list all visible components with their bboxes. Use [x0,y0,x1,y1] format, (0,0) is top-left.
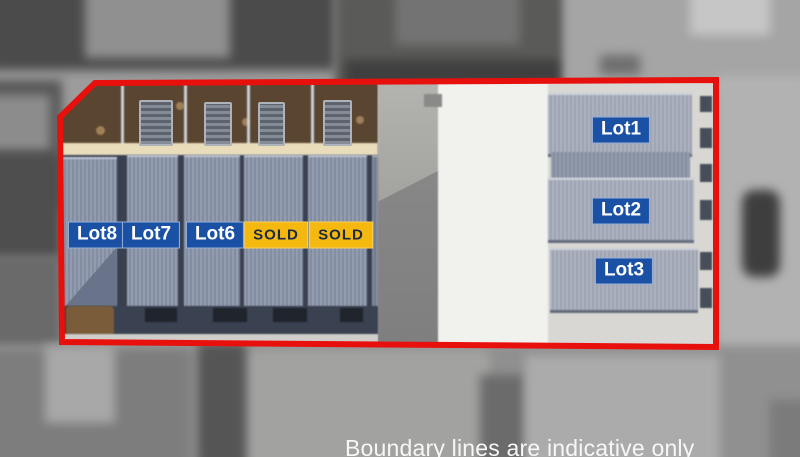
strip-bottom-far-right [770,400,800,457]
neighbour-left-lower [0,255,62,350]
neighbour-patch-top-right [690,0,770,35]
east-fence-2 [700,128,712,148]
neighbour-roof-top-mid-light [395,0,520,45]
parked-car [742,190,780,277]
east-fence-4 [700,200,712,220]
dirt-patch-front [66,306,114,336]
east-fence-6 [700,288,712,308]
boundary-disclaimer-caption: Boundary lines are indicative only [345,435,694,457]
yard-spot-1 [96,126,105,135]
east-fence-5 [700,252,712,270]
path-bottom-left [45,345,115,423]
driveway-object [424,94,442,107]
neighbour-left-light [0,95,50,150]
yard-spot-4 [356,116,364,124]
sold-badge-2: SOLD [309,222,373,249]
ac-unit-2 [204,102,232,146]
east-fence-1 [700,96,712,112]
driveway-bright [438,83,548,345]
lot8-label: Lot8 [68,222,126,249]
lot6-label: Lot6 [186,222,244,249]
carport-opening-1 [145,308,177,322]
ac-unit-1 [139,100,173,146]
lot3-label: Lot3 [595,258,653,285]
shadow-strip-bottom [198,343,246,457]
lot2-label: Lot2 [592,198,650,225]
neighbour-roof-top-left-light [85,0,230,58]
east-fence-3 [700,164,712,182]
lot1-label: Lot1 [592,117,650,144]
connector-roof [551,152,690,178]
sold-badge-1: SOLD [244,222,308,249]
front-path [62,334,390,343]
neighbour-speck-top [600,55,640,75]
ac-unit-4 [323,100,352,146]
aerial-photo: Lot8 Lot7 Lot6 SOLD SOLD Lot1 Lot2 Lot3 … [0,0,800,457]
carport-opening-4 [340,308,363,322]
carport-opening-2 [213,308,247,322]
ac-unit-3 [258,102,285,146]
carport-opening-3 [273,308,307,322]
neighbour-left-dark [0,155,62,260]
yard-spot-2 [176,102,184,110]
lot7-label: Lot7 [122,222,180,249]
